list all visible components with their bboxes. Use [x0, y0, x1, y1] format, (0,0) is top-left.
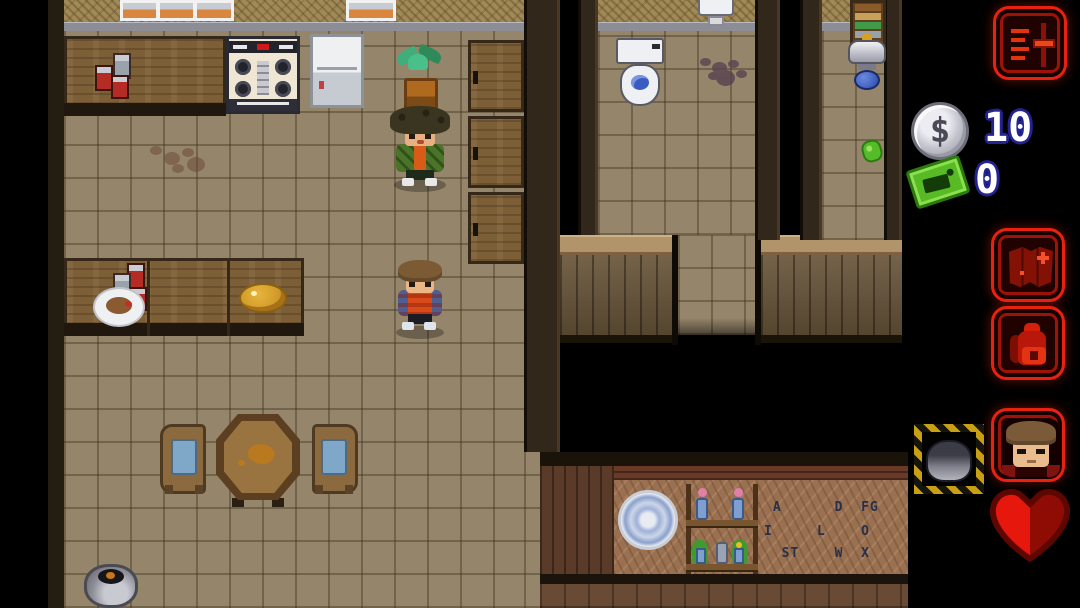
- decorative-plate: [618, 490, 678, 550]
- wood-wall: [761, 255, 902, 335]
- bathroom-wallpaper: [598, 0, 780, 22]
- meal-plate: [93, 287, 145, 327]
- kitchen-right-wall: [524, 0, 560, 452]
- food-pile: [239, 283, 287, 313]
- stove: [226, 36, 300, 114]
- kitchen-floor-patch: [524, 452, 540, 608]
- kitchen-counter: [64, 36, 226, 116]
- dollar-coin-icon: $: [911, 102, 969, 160]
- toilet: [616, 38, 664, 108]
- sink: [698, 0, 734, 26]
- bottom-wall-planks: [540, 466, 614, 574]
- character-green-jacket: [388, 106, 452, 192]
- burner: [235, 81, 251, 97]
- chair: [312, 424, 358, 494]
- backpack-icon: [1010, 321, 1054, 371]
- ticket-value: 0: [975, 160, 999, 200]
- chair: [160, 424, 206, 494]
- game-viewport[interactable]: A D FG I L O ST W X $ 10 0: [0, 0, 1080, 608]
- burner: [235, 59, 251, 75]
- alphabet-row: A D FG: [764, 500, 879, 515]
- window: [346, 0, 396, 21]
- ticket-icon: [905, 154, 971, 209]
- settings-sliders-icon: [1011, 23, 1055, 69]
- rock: [926, 440, 972, 482]
- cooking-pot: [84, 564, 138, 608]
- burner: [275, 59, 291, 75]
- bottom-room-floor: [540, 584, 908, 608]
- settings-button[interactable]: [993, 6, 1067, 80]
- alphabet-row: I L O: [764, 524, 870, 539]
- heart-icon: [986, 482, 1074, 566]
- wall-cabinets: [468, 40, 524, 264]
- potted-plant: [390, 48, 450, 112]
- flower-shelf: [686, 484, 758, 574]
- inventory-button[interactable]: [991, 306, 1065, 380]
- character-button[interactable]: [991, 408, 1065, 482]
- map-button[interactable]: [991, 228, 1065, 302]
- canned-goods: [95, 53, 139, 97]
- wood-wall: [560, 255, 678, 335]
- lamp: [844, 34, 890, 92]
- character-portrait-icon: [1002, 419, 1060, 477]
- ticket-counter: 0: [905, 154, 1065, 214]
- alphabet-row: ST W X: [764, 546, 870, 561]
- money-value: 10: [984, 108, 1032, 148]
- window: [120, 0, 234, 21]
- kitchen-counter: [64, 258, 304, 336]
- bathroom-left-wall: [578, 0, 598, 238]
- refrigerator: [310, 34, 364, 108]
- floor-stain: [150, 146, 162, 155]
- map-icon: [1009, 246, 1053, 288]
- character-striped-shirt: [390, 260, 450, 340]
- floor-stain: [700, 58, 711, 66]
- dining-table: [216, 414, 300, 508]
- alphabet-wall: A D FG I L O ST W X: [764, 498, 886, 570]
- hazard-rock: [914, 424, 984, 494]
- burner: [275, 81, 291, 97]
- health-heart: [986, 482, 1074, 566]
